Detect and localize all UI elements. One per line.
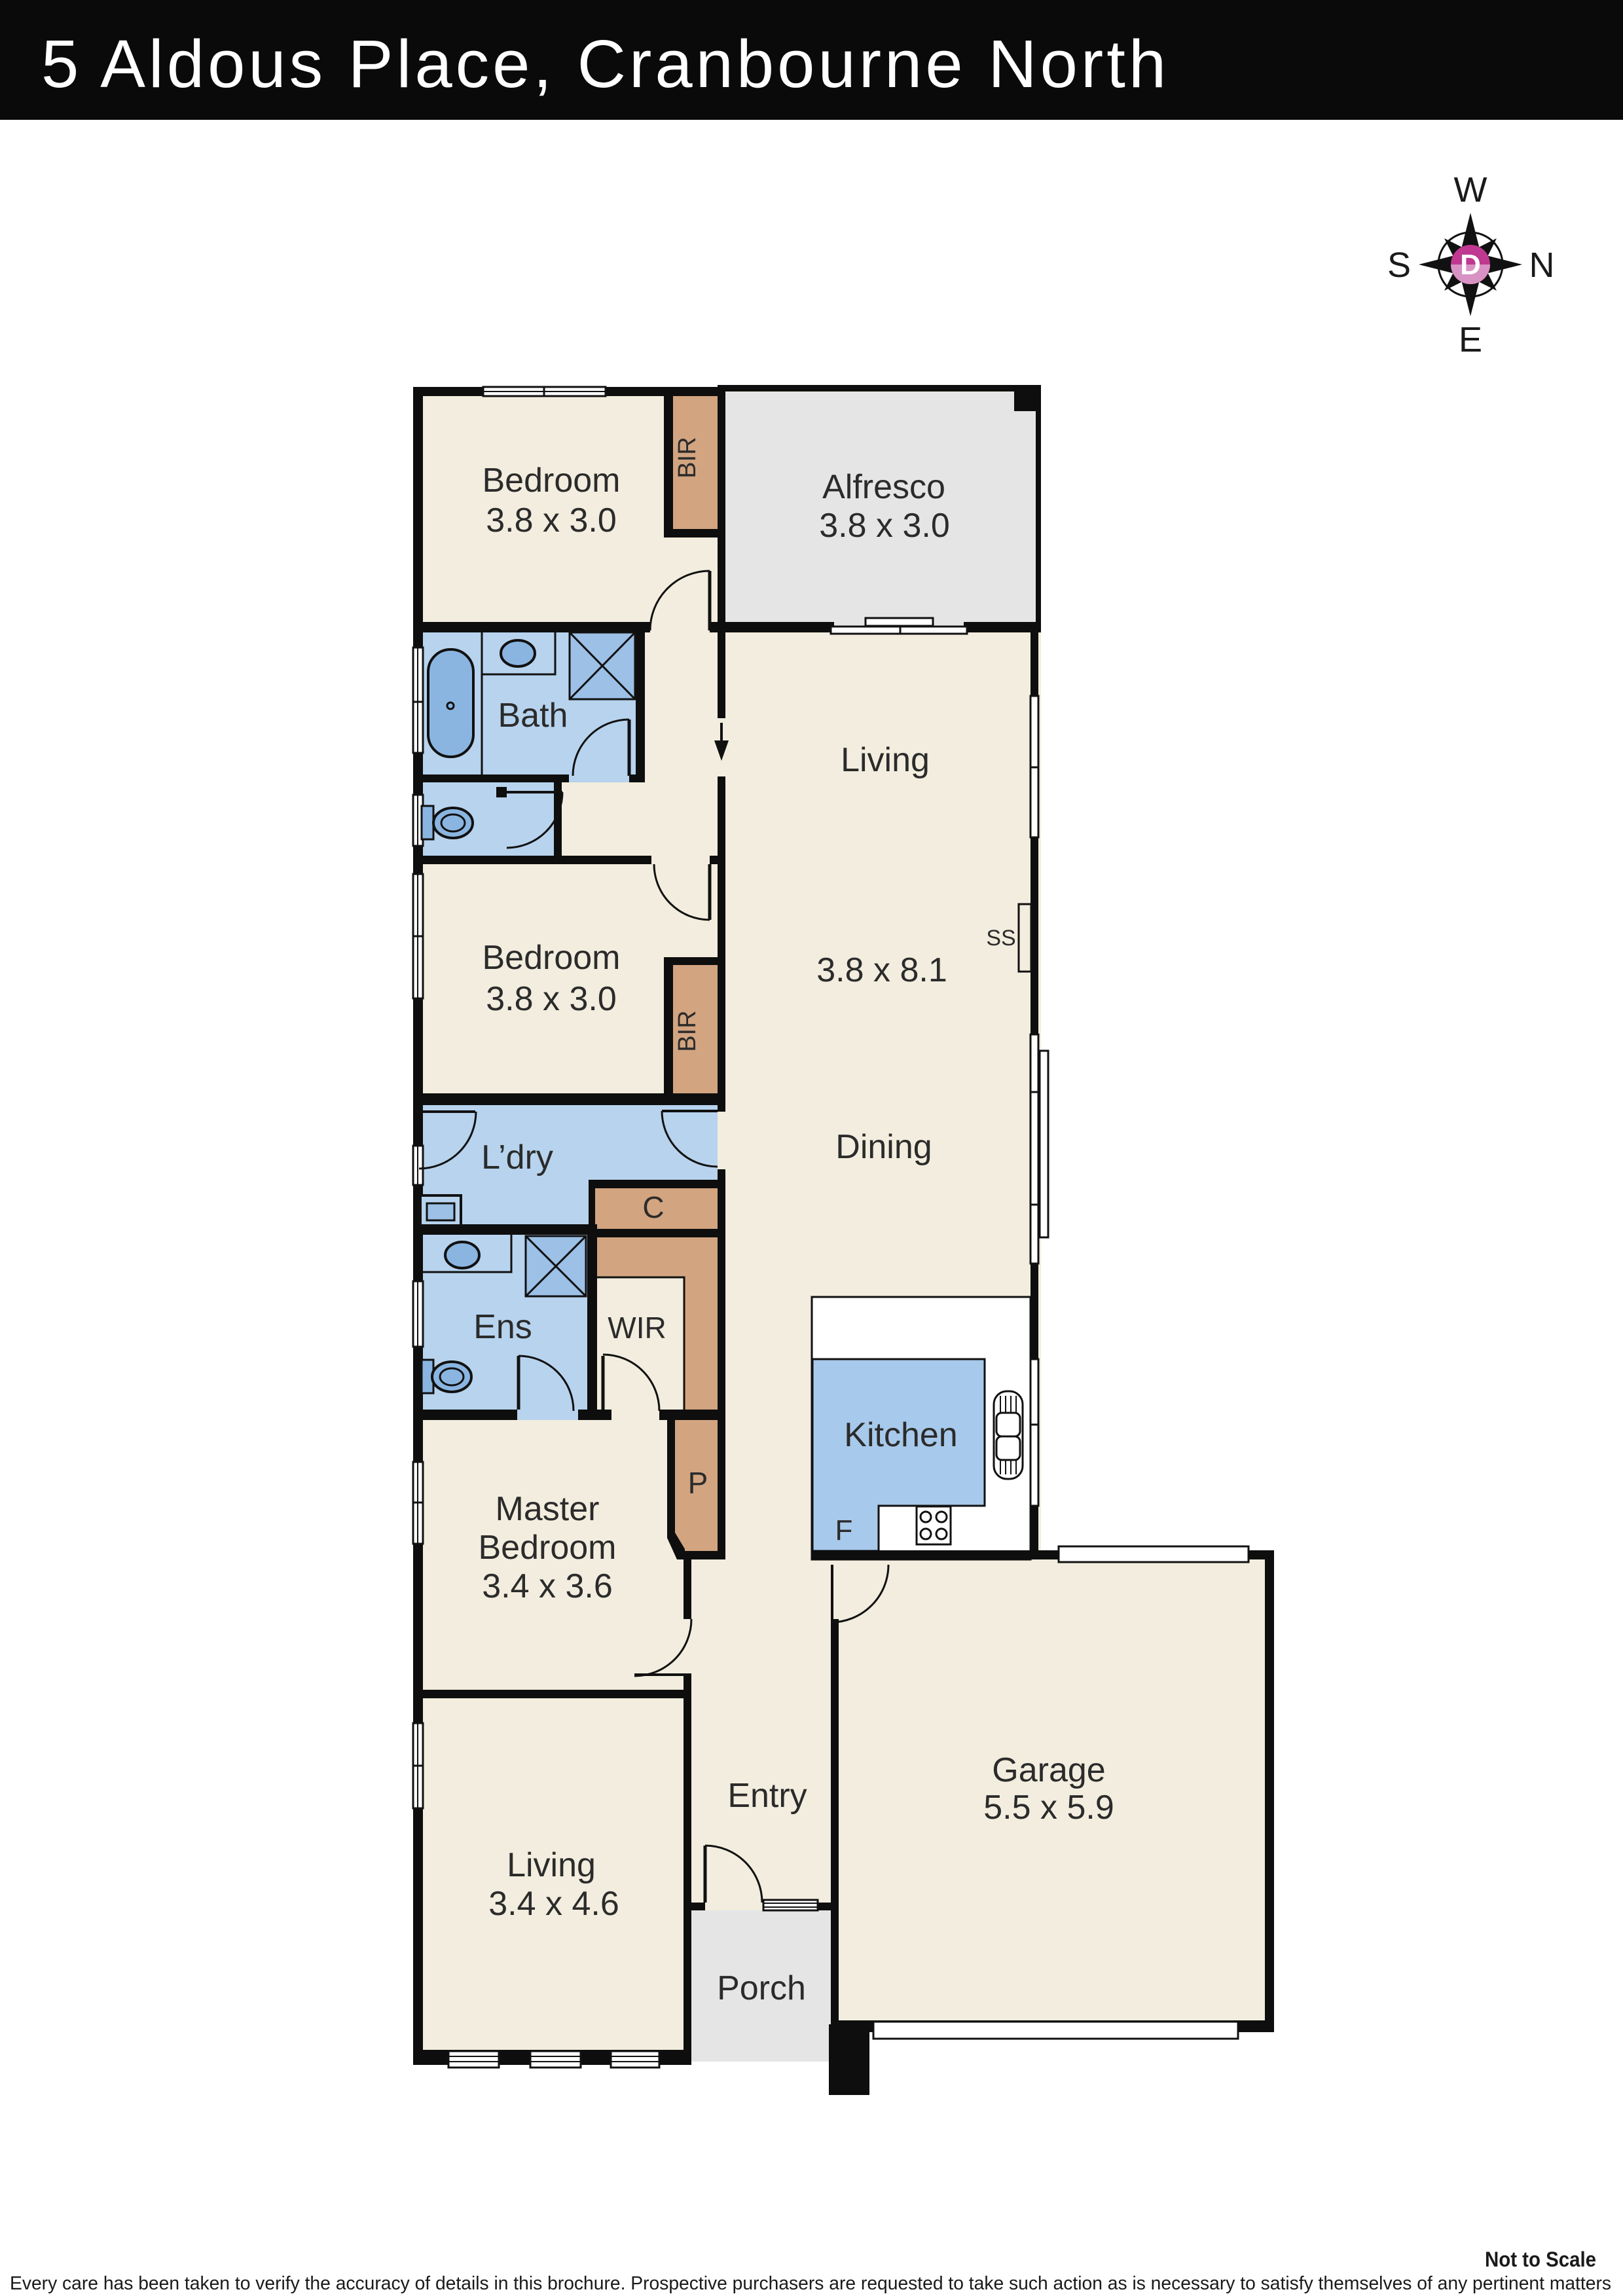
svg-text:Entry: Entry — [727, 1777, 807, 1815]
svg-text:WIR: WIR — [608, 1311, 666, 1345]
svg-text:Not to Scale: Not to Scale — [1485, 2248, 1596, 2271]
svg-text:L’dry: L’dry — [481, 1139, 553, 1176]
svg-text:Dining: Dining — [835, 1128, 932, 1166]
svg-text:BIR: BIR — [674, 437, 701, 478]
svg-text:Alfresco: Alfresco — [822, 468, 945, 506]
svg-text:Living: Living — [507, 1846, 596, 1884]
svg-text:3.8 x 3.0: 3.8 x 3.0 — [486, 980, 616, 1018]
svg-text:Bedroom: Bedroom — [483, 939, 621, 977]
svg-text:F: F — [835, 1514, 853, 1546]
svg-text:D: D — [1460, 249, 1481, 281]
svg-text:Living: Living — [841, 741, 930, 779]
svg-text:W: W — [1454, 170, 1487, 210]
svg-text:Bedroom: Bedroom — [483, 462, 621, 500]
svg-text:BIR: BIR — [674, 1010, 701, 1051]
svg-text:C: C — [642, 1190, 664, 1224]
svg-text:3.4 x 3.6: 3.4 x 3.6 — [482, 1567, 612, 1605]
svg-text:E: E — [1459, 320, 1482, 359]
svg-text:N: N — [1529, 246, 1555, 285]
svg-text:Bedroom: Bedroom — [479, 1529, 617, 1567]
svg-text:SS: SS — [986, 926, 1015, 951]
svg-text:Bath: Bath — [498, 697, 568, 735]
svg-text:Every care has been taken to v: Every care has been taken to verify the … — [10, 2273, 1611, 2294]
svg-text:5 Aldous Place, Cranbourne Nor: 5 Aldous Place, Cranbourne North — [41, 26, 1169, 101]
svg-text:3.4 x 4.6: 3.4 x 4.6 — [488, 1885, 619, 1923]
svg-text:Garage: Garage — [992, 1751, 1105, 1789]
svg-text:5.5 x 5.9: 5.5 x 5.9 — [983, 1789, 1114, 1827]
svg-text:3.8 x 3.0: 3.8 x 3.0 — [486, 501, 616, 539]
svg-text:Master: Master — [496, 1490, 600, 1528]
svg-text:S: S — [1387, 246, 1411, 285]
svg-text:P: P — [688, 1466, 708, 1500]
svg-text:3.8 x 3.0: 3.8 x 3.0 — [819, 507, 949, 545]
svg-text:Kitchen: Kitchen — [844, 1416, 957, 1454]
svg-text:Ens: Ens — [473, 1308, 532, 1346]
svg-text:3.8 x 8.1: 3.8 x 8.1 — [816, 951, 947, 989]
svg-text:Porch: Porch — [717, 1969, 806, 2007]
